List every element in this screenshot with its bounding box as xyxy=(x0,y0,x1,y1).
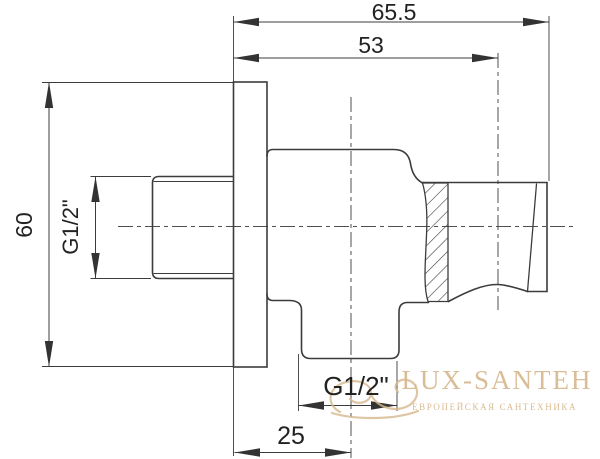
dimension-outlet-offset: 25 xyxy=(241,422,341,450)
arrow-g12-left-bottom xyxy=(91,253,99,279)
dimension-width-full: 65.5 xyxy=(344,0,444,26)
flourish-underline xyxy=(332,411,418,418)
dimension-width-to-holder-center: 53 xyxy=(321,31,421,59)
hatched-cross-section xyxy=(423,183,449,302)
inlet-thread-lines xyxy=(154,182,233,274)
wall-plate xyxy=(234,82,268,367)
arrow-g12-bottom-left xyxy=(299,401,325,409)
part-outlines xyxy=(153,82,548,367)
holder-inner-cone xyxy=(528,184,537,292)
body-lower-outline xyxy=(267,294,429,359)
watermark-brand: LUX-SANTEH xyxy=(398,365,596,396)
arrow-g12-left-top xyxy=(91,177,99,203)
watermark-tagline: ЕВРОПЕЙСКАЯ САНТЕХНИКА xyxy=(412,402,574,412)
dimension-plate-height: 60 xyxy=(10,185,38,265)
dimension-outlet-thread: G1/2" xyxy=(306,372,406,400)
arrow-65-5-left xyxy=(234,18,260,26)
arrow-65-5-right xyxy=(523,18,549,26)
body-upper-outline xyxy=(267,150,423,184)
arrow-60-top xyxy=(45,82,53,108)
holder-cup-bottom-arc xyxy=(449,285,528,302)
technical-drawing-canvas: 65.5 53 60 G1/2" G1/2" 25 LUX-SANTEH ЕВР… xyxy=(0,0,600,459)
holder-right-edge xyxy=(528,183,548,292)
dimension-inlet-thread: G1/2" xyxy=(57,177,85,277)
arrow-60-bottom xyxy=(45,341,53,367)
arrow-53-left xyxy=(234,54,260,62)
arrow-53-right xyxy=(472,54,498,62)
inlet-nipple xyxy=(153,177,234,279)
